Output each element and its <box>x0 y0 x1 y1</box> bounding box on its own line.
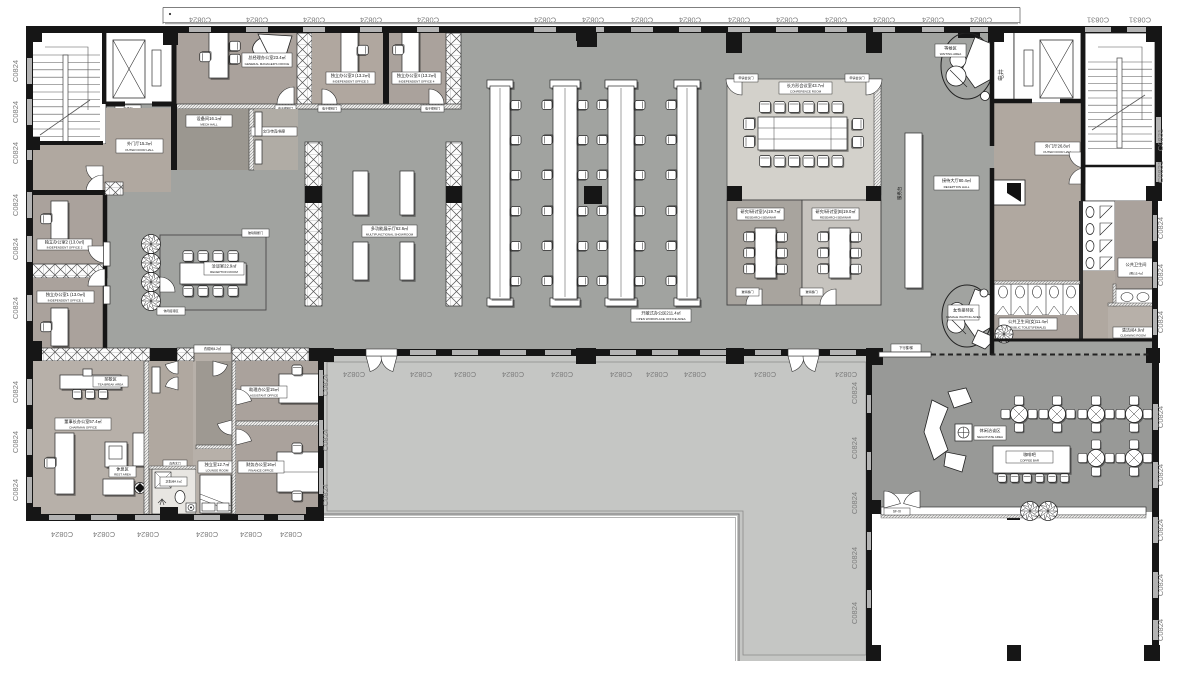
svg-text:C0824: C0824 <box>631 16 653 25</box>
svg-text:外门厅26.8㎡: 外门厅26.8㎡ <box>1045 142 1071 149</box>
svg-text:CONFERENCE ROOM: CONFERENCE ROOM <box>790 89 822 93</box>
svg-text:C0824: C0824 <box>417 16 439 25</box>
svg-text:C0824: C0824 <box>11 238 20 260</box>
svg-text:C0824: C0824 <box>303 16 325 25</box>
svg-text:C0824: C0824 <box>850 602 859 624</box>
svg-text:C0824: C0824 <box>1156 406 1165 428</box>
svg-text:休闲洽谈区: 休闲洽谈区 <box>980 427 1001 434</box>
svg-text:C0831: C0831 <box>1087 16 1109 25</box>
svg-text:C0824: C0824 <box>51 530 73 539</box>
svg-text:C0831: C0831 <box>1156 161 1165 183</box>
svg-text:C0824: C0824 <box>360 16 382 25</box>
svg-text:申请会议门: 申请会议门 <box>738 75 753 80</box>
svg-text:女性接待区: 女性接待区 <box>953 306 974 313</box>
svg-text:独立办公室4 (13.2㎡): 独立办公室4 (13.2㎡) <box>397 72 437 79</box>
svg-text:C0824: C0824 <box>11 297 20 319</box>
svg-text:RECEPTION ROOM: RECEPTION ROOM <box>210 270 238 274</box>
svg-text:MULTIFUNCTIONAL SHOWROOM: MULTIFUNCTIONAL SHOWROOM <box>366 232 414 236</box>
svg-text:电子密码门: 电子密码门 <box>425 106 440 111</box>
svg-text:C0824: C0824 <box>679 16 701 25</box>
svg-text:INDEPENDENT OFFICE 1: INDEPENDENT OFFICE 1 <box>48 298 84 302</box>
svg-text:ASSISTANT OFFICE: ASSISTANT OFFICE <box>250 393 278 397</box>
svg-text:C0824: C0824 <box>534 16 556 25</box>
svg-text:休闲接待区: 休闲接待区 <box>163 308 178 313</box>
svg-text:OPEN WORKPLACE OFFICE AREA: OPEN WORKPLACE OFFICE AREA <box>636 317 685 321</box>
svg-text:董事长办公室57.4㎡: 董事长办公室57.4㎡ <box>64 418 102 425</box>
svg-text:OUTER DOOR HALL: OUTER DOOR HALL <box>125 148 154 152</box>
svg-text:C0824: C0824 <box>11 194 20 216</box>
svg-text:C0824: C0824 <box>835 370 857 379</box>
svg-text:C0824: C0824 <box>321 484 330 506</box>
svg-text:RESEARCH SEMINAR: RESEARCH SEMINAR <box>745 215 777 219</box>
svg-text:RESEARCH SEMINAR: RESEARCH SEMINAR <box>820 215 852 219</box>
svg-text:公共卫生间: 公共卫生间 <box>1126 261 1147 268</box>
svg-text:C0824: C0824 <box>321 429 330 451</box>
svg-text:下行楼/梯: 下行楼/梯 <box>899 345 913 350</box>
svg-text:C0824: C0824 <box>240 530 262 539</box>
svg-text:C0831: C0831 <box>1156 129 1165 151</box>
svg-text:C0824: C0824 <box>502 370 524 379</box>
svg-text:CHAIRMAN OFFICE: CHAIRMAN OFFICE <box>69 425 97 429</box>
svg-text:INDEPENDENT OFFICE 3: INDEPENDENT OFFICE 3 <box>333 79 369 83</box>
svg-text:C0831: C0831 <box>1129 16 1151 25</box>
svg-text:C0824: C0824 <box>11 60 20 82</box>
svg-text:C0824: C0824 <box>196 530 218 539</box>
svg-text:INDEPENDENT OFFICE 4: INDEPENDENT OFFICE 4 <box>399 79 435 83</box>
svg-text:NEGOTIATE AREA: NEGOTIATE AREA <box>977 435 1003 439</box>
svg-text:公共卫生间(女)11.4㎡: 公共卫生间(女)11.4㎡ <box>1008 318 1049 325</box>
svg-text:(男)15.4㎡: (男)15.4㎡ <box>1129 270 1143 275</box>
svg-text:C0824: C0824 <box>754 370 776 379</box>
svg-text:C0824: C0824 <box>970 16 992 25</box>
svg-text:白色木门: 白色木门 <box>169 461 180 465</box>
svg-text:REST AREA: REST AREA <box>114 472 131 476</box>
svg-text:C0824: C0824 <box>11 101 20 123</box>
svg-text:文印/传真/档案: 文印/传真/档案 <box>263 129 286 134</box>
svg-text:财务办公室16㎡: 财务办公室16㎡ <box>246 461 277 468</box>
svg-text:C0824: C0824 <box>11 431 20 453</box>
svg-text:C0824: C0824 <box>646 370 668 379</box>
svg-text:C0824: C0824 <box>1156 619 1165 641</box>
svg-text:洽谈室22.9㎡: 洽谈室22.9㎡ <box>212 262 238 269</box>
svg-text:TEA BREAK AREA: TEA BREAK AREA <box>98 382 124 386</box>
svg-text:C0824: C0824 <box>1156 464 1165 486</box>
svg-text:C0824: C0824 <box>93 530 115 539</box>
svg-text:C0824: C0824 <box>850 437 859 459</box>
svg-text:PUBLIC TOILET(FEMALE): PUBLIC TOILET(FEMALE) <box>1010 325 1046 329</box>
svg-text:COFFEE BAR: COFFEE BAR <box>1020 458 1040 462</box>
svg-text:OUTER DOOR HALL: OUTER DOOR HALL <box>1043 150 1072 154</box>
svg-text:申请会议门: 申请会议门 <box>849 75 864 80</box>
svg-text:C0824: C0824 <box>551 370 573 379</box>
svg-text:C0824: C0824 <box>343 370 365 379</box>
svg-text:C0824: C0824 <box>850 492 859 514</box>
svg-text:C0824: C0824 <box>776 16 798 25</box>
svg-text:C0824: C0824 <box>825 16 847 25</box>
svg-text:C0824: C0824 <box>246 16 268 25</box>
svg-text:开敞式办公区211.4㎡: 开敞式办公区211.4㎡ <box>641 309 681 316</box>
svg-text:C0824: C0824 <box>11 142 20 164</box>
svg-text:C0824: C0824 <box>850 382 859 404</box>
svg-text:长方形会议室43.7㎡: 长方形会议室43.7㎡ <box>787 82 825 89</box>
svg-text:C0824: C0824 <box>137 530 159 539</box>
svg-text:独立办公室1 (13.0㎡): 独立办公室1 (13.0㎡) <box>46 291 86 298</box>
svg-text:C0824: C0824 <box>189 16 211 25</box>
svg-text:设备间16.1㎡: 设备间16.1㎡ <box>197 115 223 122</box>
svg-text:C0824: C0824 <box>873 16 895 25</box>
svg-text:WAITING AREA: WAITING AREA <box>940 52 962 56</box>
svg-text:等候区: 等候区 <box>944 44 957 51</box>
svg-text:RECEPTION HALL: RECEPTION HALL <box>944 185 970 189</box>
svg-text:C0824: C0824 <box>582 16 604 25</box>
svg-text:C0824: C0824 <box>321 374 330 396</box>
svg-text:独立室12.7㎡: 独立室12.7㎡ <box>205 461 231 468</box>
svg-text:玻璃移门: 玻璃移门 <box>805 289 817 294</box>
svg-text:C0824: C0824 <box>410 370 432 379</box>
svg-text:独立办公室3 (13.2㎡): 独立办公室3 (13.2㎡) <box>331 72 371 79</box>
svg-text:C0824: C0824 <box>684 370 706 379</box>
svg-text:GENERAL MANAGER'S OFFICE: GENERAL MANAGER'S OFFICE <box>245 62 290 66</box>
svg-text:C0824: C0824 <box>454 370 476 379</box>
svg-text:C0824: C0824 <box>280 530 302 539</box>
svg-text:研究/研讨室(A)19.7㎡: 研究/研讨室(A)19.7㎡ <box>740 208 781 215</box>
svg-text:LOUNGE ROOM: LOUNGE ROOM <box>206 468 229 472</box>
svg-text:CLEANING ROOM: CLEANING ROOM <box>1120 333 1146 337</box>
svg-text:MECH HALL: MECH HALL <box>200 122 218 126</box>
svg-text:C0824: C0824 <box>1156 574 1165 596</box>
svg-text:接待大厅80.4㎡: 接待大厅80.4㎡ <box>942 177 972 184</box>
svg-text:SF-XI: SF-XI <box>893 510 901 514</box>
svg-text:助理办公室15㎡: 助理办公室15㎡ <box>249 386 280 393</box>
svg-text:C0824: C0824 <box>1156 217 1165 239</box>
svg-text:C0824: C0824 <box>728 16 750 25</box>
svg-text:咖啡吧: 咖啡吧 <box>1023 451 1036 458</box>
svg-text:C0824: C0824 <box>1156 311 1165 333</box>
svg-text:卫生间4.6㎡: 卫生间4.6㎡ <box>165 479 181 484</box>
svg-text:FEMALE WAITING AREA: FEMALE WAITING AREA <box>946 315 980 319</box>
svg-text:总经理办公室23.4㎡: 总经理办公室23.4㎡ <box>248 54 286 61</box>
svg-text:C0824: C0824 <box>922 16 944 25</box>
svg-text:FINANCE OFFICE: FINANCE OFFICE <box>248 468 273 472</box>
svg-text:多功能展示厅62.6㎡: 多功能展示厅62.6㎡ <box>371 225 409 232</box>
svg-text:电井: 电井 <box>997 69 1005 81</box>
svg-text:研究/研讨室(B)19.0㎡: 研究/研讨室(B)19.0㎡ <box>815 208 856 215</box>
svg-text:外门厅15.3㎡: 外门厅15.3㎡ <box>127 140 153 147</box>
svg-text:C0824: C0824 <box>1156 264 1165 286</box>
svg-text:电子密码门: 电子密码门 <box>322 106 337 111</box>
svg-text:衣帽间4.2㎡: 衣帽间4.2㎡ <box>204 346 222 351</box>
svg-text:服务台: 服务台 <box>896 186 903 200</box>
svg-text:C0824: C0824 <box>11 381 20 403</box>
svg-text:玻璃移门: 玻璃移门 <box>741 289 753 294</box>
svg-text:C0824: C0824 <box>610 370 632 379</box>
svg-text:C0824: C0824 <box>1156 519 1165 541</box>
svg-text:玻璃隔断门: 玻璃隔断门 <box>248 230 263 235</box>
svg-text:C0824: C0824 <box>850 547 859 569</box>
svg-text:C0824: C0824 <box>11 479 20 501</box>
svg-text:INDEPENDENT OFFICE 2: INDEPENDENT OFFICE 2 <box>47 245 83 249</box>
